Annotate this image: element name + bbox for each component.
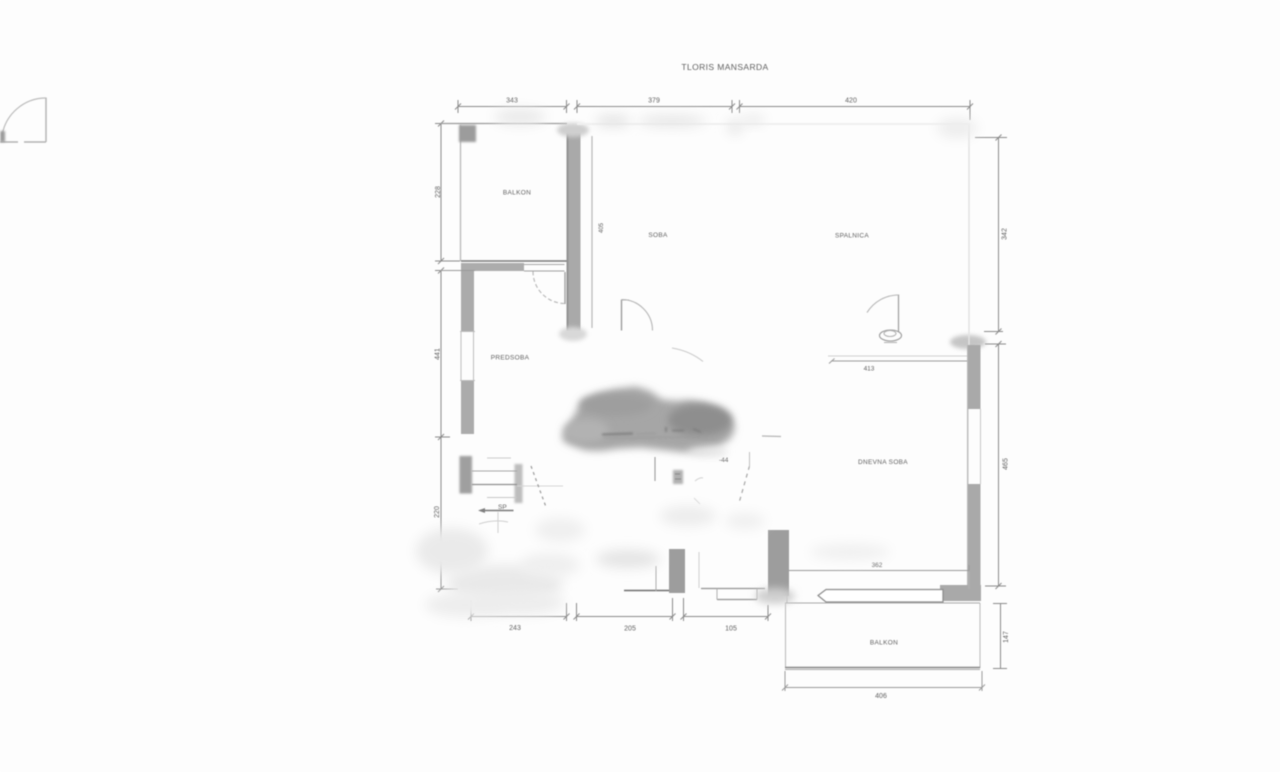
svg-text:SP: SP — [498, 504, 507, 511]
svg-text:BALKON: BALKON — [870, 640, 898, 647]
svg-text:465: 465 — [1003, 458, 1010, 470]
svg-text:TLORIS MANSARDA: TLORIS MANSARDA — [681, 62, 768, 72]
svg-text:228: 228 — [435, 186, 442, 198]
svg-text:220: 220 — [434, 506, 441, 518]
svg-text:406: 406 — [875, 693, 887, 700]
svg-text:BALKON: BALKON — [503, 190, 531, 197]
svg-text:413: 413 — [864, 366, 875, 373]
svg-text:147: 147 — [1003, 631, 1010, 643]
svg-text:SOBA: SOBA — [648, 232, 668, 239]
svg-text:205: 205 — [624, 626, 636, 633]
svg-text:105: 105 — [725, 626, 737, 633]
svg-text:342: 342 — [1002, 228, 1009, 240]
svg-text:343: 343 — [506, 98, 518, 105]
svg-text:441: 441 — [435, 348, 442, 360]
svg-text:379: 379 — [648, 98, 660, 105]
svg-text:405: 405 — [599, 222, 605, 233]
svg-text:243: 243 — [509, 625, 521, 632]
svg-text:DNEVNA SOBA: DNEVNA SOBA — [858, 459, 908, 466]
svg-text:420: 420 — [845, 98, 857, 105]
svg-text:PREDSOBA: PREDSOBA — [491, 355, 530, 362]
svg-text:-44: -44 — [719, 457, 729, 464]
svg-text:362: 362 — [872, 562, 883, 569]
svg-text:SPALNICA: SPALNICA — [835, 233, 869, 240]
